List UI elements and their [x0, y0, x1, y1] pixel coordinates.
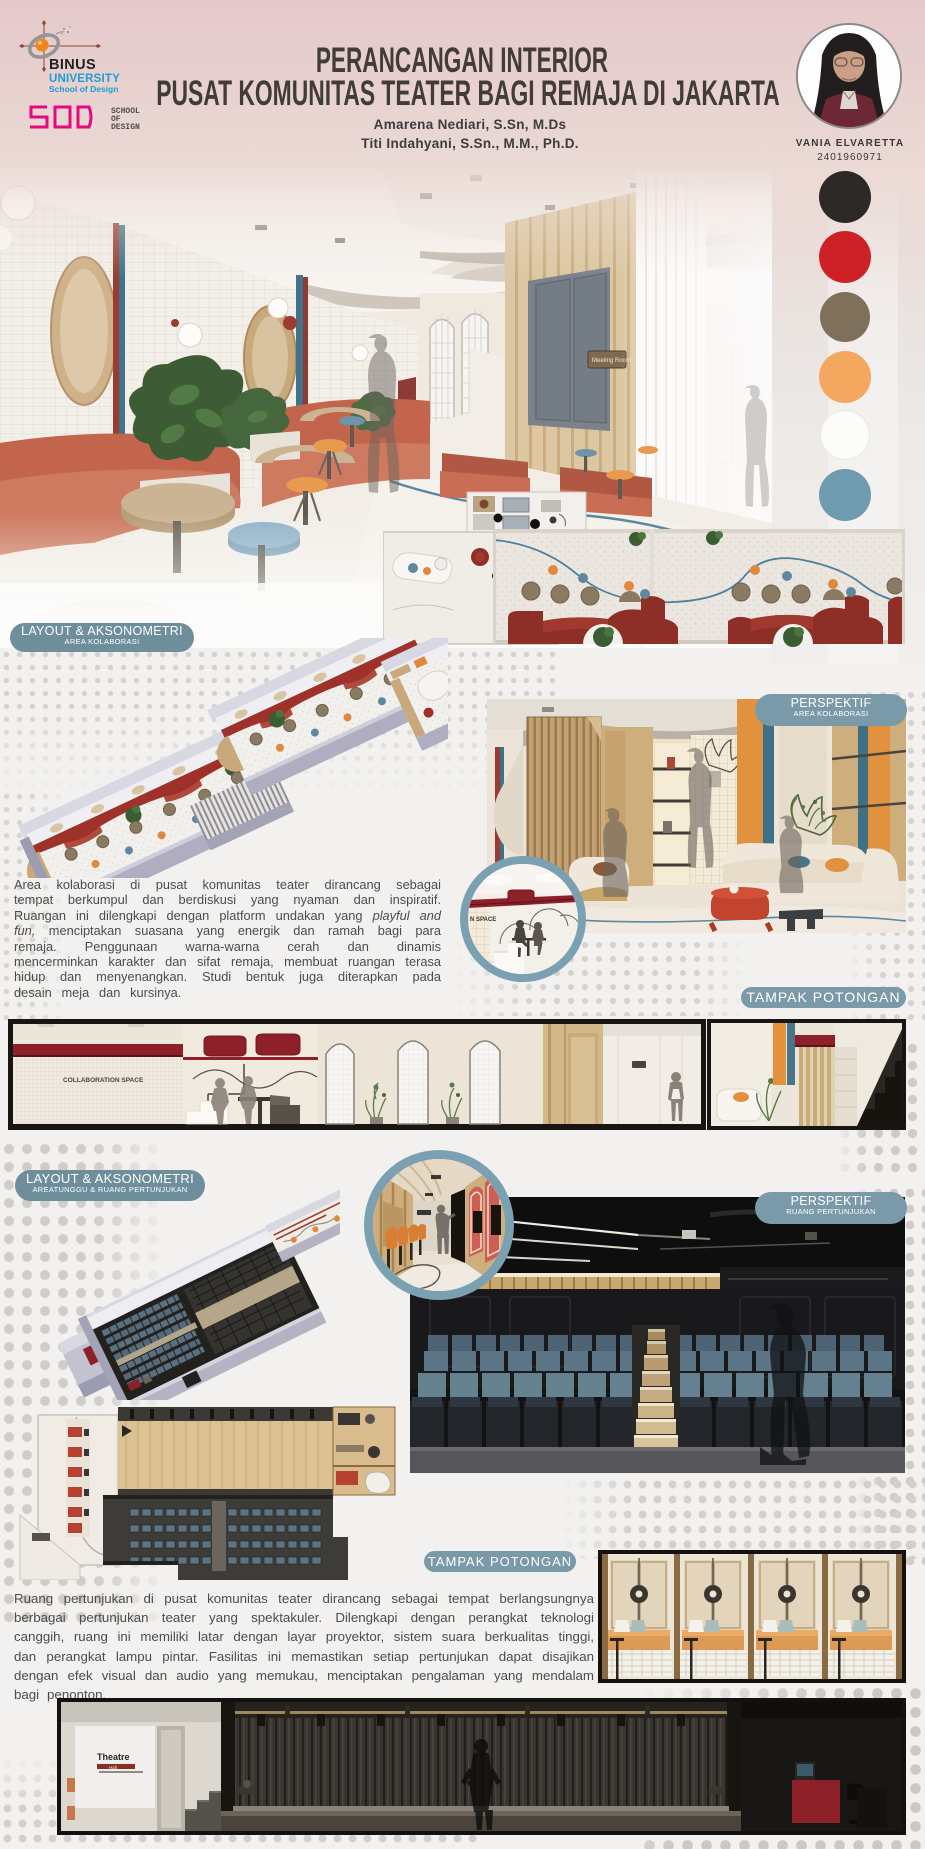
- svg-text:Hall: Hall: [109, 1765, 117, 1770]
- svg-text:N SPACE: N SPACE: [470, 917, 496, 923]
- svg-text:DESIGN: DESIGN: [111, 123, 140, 132]
- svg-text:Theatre: Theatre: [97, 1752, 130, 1762]
- svg-text:COLLABORATION SPACE: COLLABORATION SPACE: [63, 1077, 144, 1084]
